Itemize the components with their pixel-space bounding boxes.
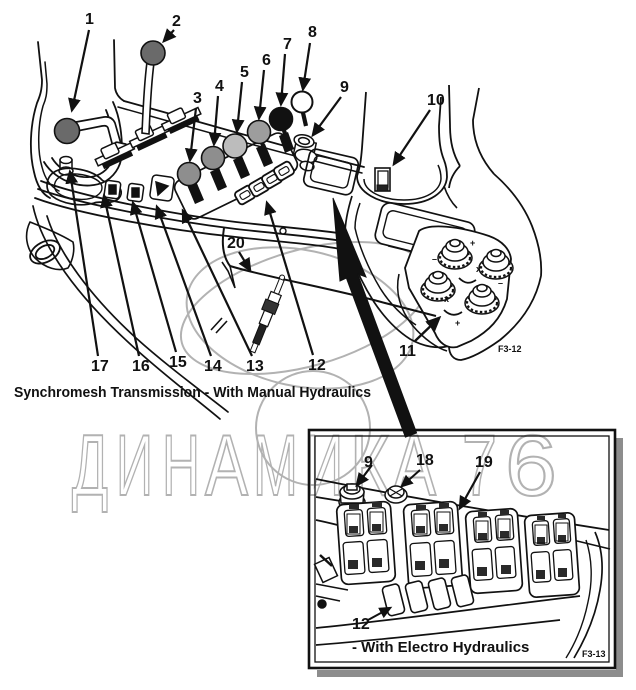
svg-text:А: А	[205, 418, 248, 514]
svg-text:–: –	[498, 278, 503, 288]
svg-text:12: 12	[308, 357, 326, 374]
svg-text:11: 11	[399, 343, 416, 360]
svg-text:6: 6	[262, 52, 271, 69]
svg-text:17: 17	[91, 358, 109, 375]
svg-text:1: 1	[85, 11, 94, 28]
svg-text:4: 4	[215, 78, 224, 95]
svg-text:9: 9	[340, 79, 349, 96]
svg-text:М: М	[253, 418, 298, 514]
svg-text:14: 14	[204, 358, 222, 375]
svg-text:- With Electro Hydraulics: - With Electro Hydraulics	[352, 639, 529, 656]
svg-text:Н: Н	[162, 418, 200, 514]
svg-text:x: x	[444, 294, 449, 304]
svg-text:+: +	[455, 318, 460, 328]
svg-text:6: 6	[505, 418, 557, 514]
svg-text:7: 7	[283, 36, 292, 53]
svg-text:12: 12	[352, 616, 370, 633]
svg-text:–: –	[432, 254, 437, 264]
svg-text:И: И	[116, 418, 153, 514]
svg-text:5: 5	[240, 64, 249, 81]
svg-text:10: 10	[427, 92, 445, 109]
svg-text:F3-12: F3-12	[498, 344, 522, 354]
svg-text:19: 19	[475, 454, 493, 471]
svg-text:8: 8	[308, 24, 317, 41]
svg-text:x: x	[476, 264, 481, 274]
svg-text:2: 2	[172, 13, 181, 30]
svg-text:13: 13	[246, 358, 264, 375]
svg-text:20: 20	[227, 235, 245, 252]
svg-text:15: 15	[169, 354, 187, 371]
svg-text:Д: Д	[72, 418, 108, 514]
svg-text:16: 16	[132, 358, 150, 375]
svg-text:18: 18	[416, 452, 434, 469]
svg-text:F3-13: F3-13	[582, 649, 606, 659]
svg-text:+: +	[470, 238, 475, 248]
svg-text:3: 3	[193, 90, 202, 107]
svg-text:Synchromesh Transmission - Wit: Synchromesh Transmission - With Manual H…	[14, 384, 371, 401]
